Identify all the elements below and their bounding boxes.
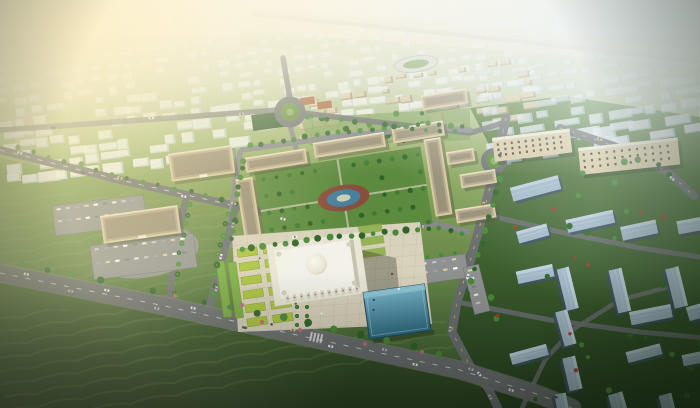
masterplan-render xyxy=(0,0,700,408)
vignette xyxy=(0,0,700,408)
masterplan-scene xyxy=(0,0,700,408)
atmosphere xyxy=(0,0,700,408)
